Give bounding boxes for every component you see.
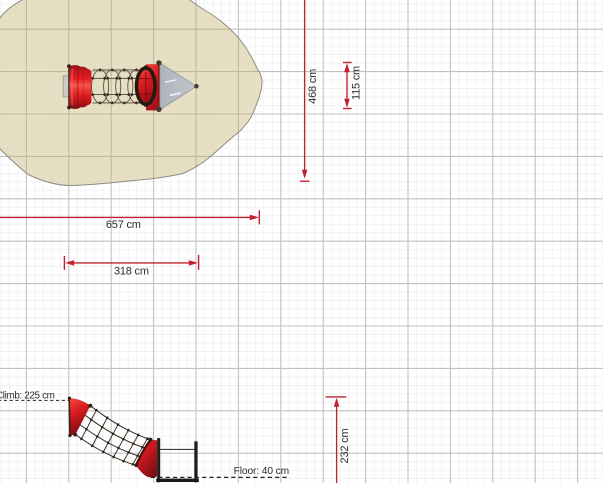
svg-text:657 cm: 657 cm bbox=[106, 219, 141, 231]
svg-text:318 cm: 318 cm bbox=[114, 265, 149, 277]
svg-text:232 cm: 232 cm bbox=[339, 429, 351, 464]
svg-text:Climb: 225 cm: Climb: 225 cm bbox=[0, 390, 55, 401]
svg-text:115 cm: 115 cm bbox=[350, 66, 362, 100]
svg-text:468 cm: 468 cm bbox=[307, 69, 319, 104]
svg-text:Floor: 40 cm: Floor: 40 cm bbox=[234, 466, 289, 477]
